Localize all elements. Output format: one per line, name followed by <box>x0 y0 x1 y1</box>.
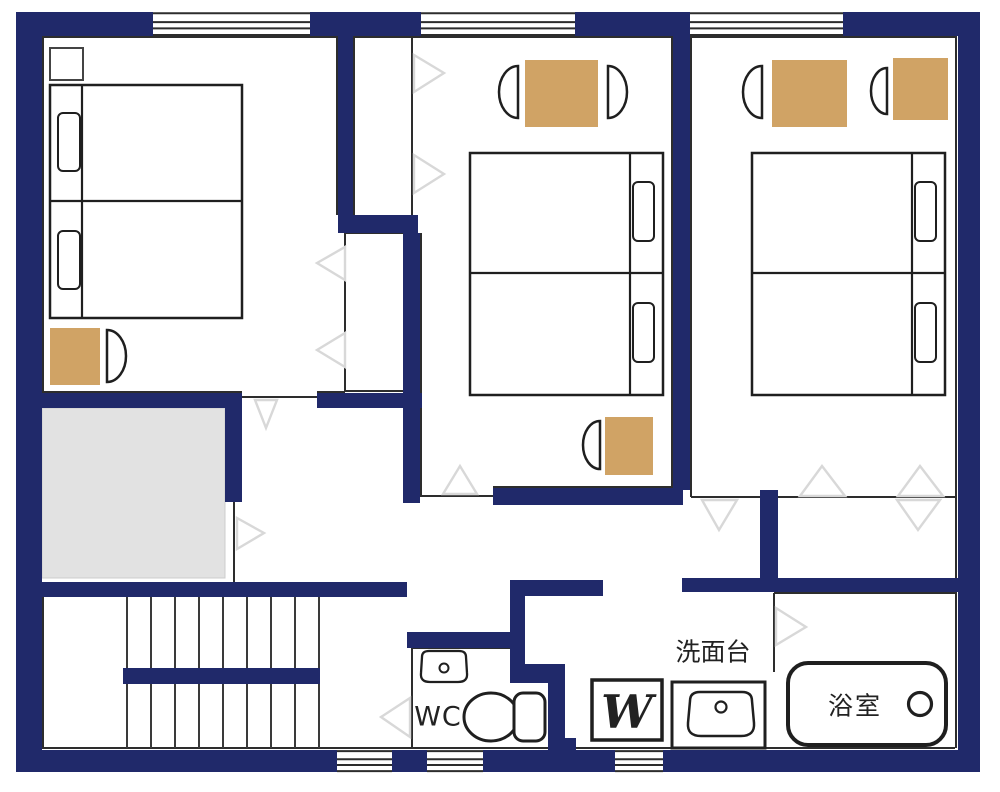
door-marker-engawa-d <box>897 500 940 530</box>
bathroom-label: 浴室 <box>828 692 882 721</box>
window-bottom-2 <box>427 750 483 772</box>
door-marker-closet2-a <box>414 55 444 92</box>
outer-wall-left <box>16 12 42 772</box>
floor-plan: WC洗面台浴室W <box>0 0 1000 792</box>
chair-room3-side <box>871 68 887 114</box>
door-marker-room2-entry <box>443 466 477 494</box>
chair-room2-left <box>499 66 518 118</box>
door-marker-closet2-b <box>414 155 444 193</box>
outer-wall-right <box>958 12 980 772</box>
stairwell-void <box>42 408 225 578</box>
door-marker-engawa-a <box>800 466 845 496</box>
mat-room3-side <box>893 58 948 120</box>
wall-gray-area-right <box>225 393 242 502</box>
door-marker-room1-entry <box>255 400 277 428</box>
window-top-2 <box>421 12 575 36</box>
chair-room1 <box>107 330 126 382</box>
window-bottom-1 <box>337 750 392 772</box>
chair-room3-left <box>743 66 762 118</box>
wall-wc-jog <box>510 664 552 683</box>
washstand-label: 洗面台 <box>675 638 750 667</box>
mat-room3-table <box>772 60 847 127</box>
mat-room2-table <box>525 60 598 127</box>
wall-room1-closet-top <box>338 36 353 215</box>
stair-rail <box>123 668 320 684</box>
window-top-1 <box>153 12 310 36</box>
wall-room1-bottom-left <box>42 393 242 408</box>
wall-closet-jog <box>338 215 418 233</box>
wall-room2-room3-divider <box>673 36 690 490</box>
pillow <box>915 303 936 362</box>
outer-wall-bottom <box>16 750 958 772</box>
wall-hall-mid <box>510 580 603 596</box>
window-bottom-3 <box>615 750 663 772</box>
chair-room2-lower <box>583 421 600 469</box>
wall-wc-top <box>407 632 510 648</box>
door-marker-engawa-b <box>898 466 943 496</box>
mat-room2-lower <box>605 417 653 475</box>
door-marker-wc <box>381 698 410 737</box>
pillow <box>633 182 654 241</box>
wall-room2-left <box>403 233 420 503</box>
door-marker-closet1-b <box>317 333 345 367</box>
pillow <box>58 231 80 289</box>
chair-room2-right <box>608 66 627 118</box>
door-marker-engawa-c <box>702 500 737 530</box>
mat-room1 <box>50 328 100 385</box>
small-sink-drain <box>440 664 449 673</box>
door-marker-bathroom <box>776 608 806 645</box>
wall-bath-top <box>682 578 958 592</box>
door-marker-hall <box>237 518 264 549</box>
door-marker-closet1-a <box>317 247 345 280</box>
nightstand-room1 <box>50 48 83 80</box>
toilet-bowl-icon <box>464 693 518 741</box>
washer-label: W <box>601 685 657 739</box>
wall-room1-bottom-right <box>317 393 422 408</box>
wall-wc-right-lower <box>548 664 565 750</box>
wall-wc-right-upper <box>510 596 525 670</box>
pillow <box>633 303 654 362</box>
pillow <box>915 182 936 241</box>
wc-label: WC <box>414 702 462 733</box>
washbasin-icon <box>688 692 754 736</box>
window-top-3 <box>690 12 843 36</box>
wall-engawa-divider <box>760 490 778 592</box>
pillow <box>58 113 80 171</box>
washbasin-drain <box>716 702 727 713</box>
floor-plan-svg: WC洗面台浴室W <box>0 0 1000 792</box>
wall-above-stairs <box>42 582 407 597</box>
bathtub-faucet-icon <box>909 693 932 716</box>
wall-room2-bottom <box>493 488 683 505</box>
wall-wc-foot-block <box>548 738 576 750</box>
toilet-tank-icon <box>514 693 545 741</box>
